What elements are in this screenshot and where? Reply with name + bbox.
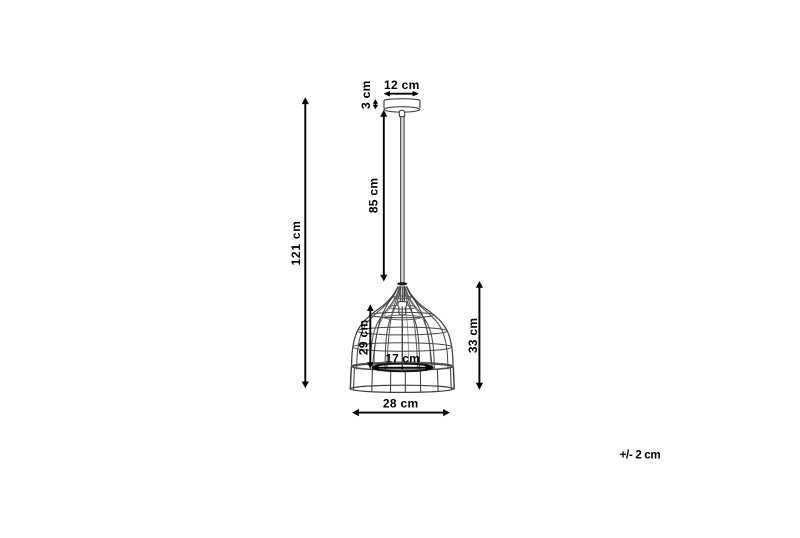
svg-text:29 cm: 29 cm: [356, 320, 370, 356]
svg-text:3 cm: 3 cm: [359, 80, 373, 109]
svg-text:+/- 2 cm: +/- 2 cm: [620, 449, 661, 462]
svg-text:28 cm: 28 cm: [383, 397, 419, 411]
svg-text:85 cm: 85 cm: [367, 178, 381, 214]
svg-text:17 cm: 17 cm: [385, 351, 420, 365]
svg-text:12 cm: 12 cm: [384, 78, 420, 92]
svg-text:121 cm: 121 cm: [289, 220, 303, 265]
svg-text:33 cm: 33 cm: [466, 318, 480, 354]
